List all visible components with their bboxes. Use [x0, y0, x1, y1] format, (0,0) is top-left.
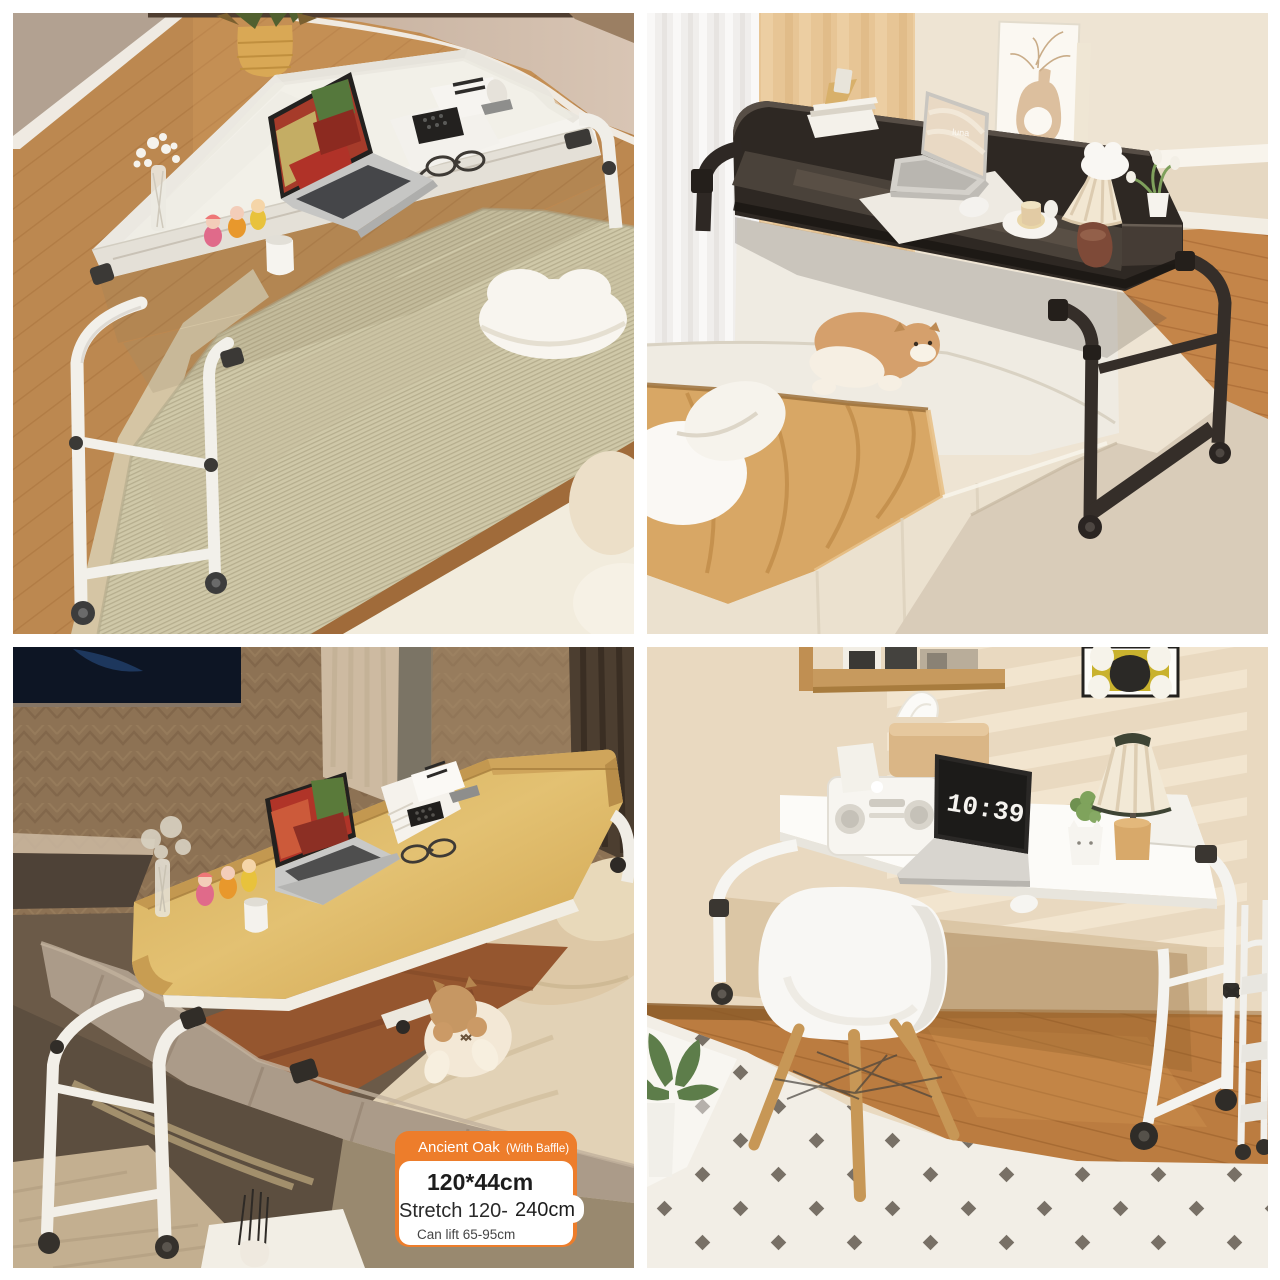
svg-text:Ancient Oak: Ancient Oak	[418, 1139, 500, 1156]
svg-text:Can lift 65-95cm: Can lift 65-95cm	[417, 1227, 515, 1242]
svg-text:luna: luna	[952, 127, 970, 138]
svg-text:Stretch 120-: Stretch 120-	[399, 1200, 508, 1222]
svg-text:120*44cm: 120*44cm	[427, 1169, 533, 1195]
svg-text:(With Baffle): (With Baffle)	[506, 1143, 569, 1155]
svg-text:240cm: 240cm	[515, 1199, 575, 1221]
